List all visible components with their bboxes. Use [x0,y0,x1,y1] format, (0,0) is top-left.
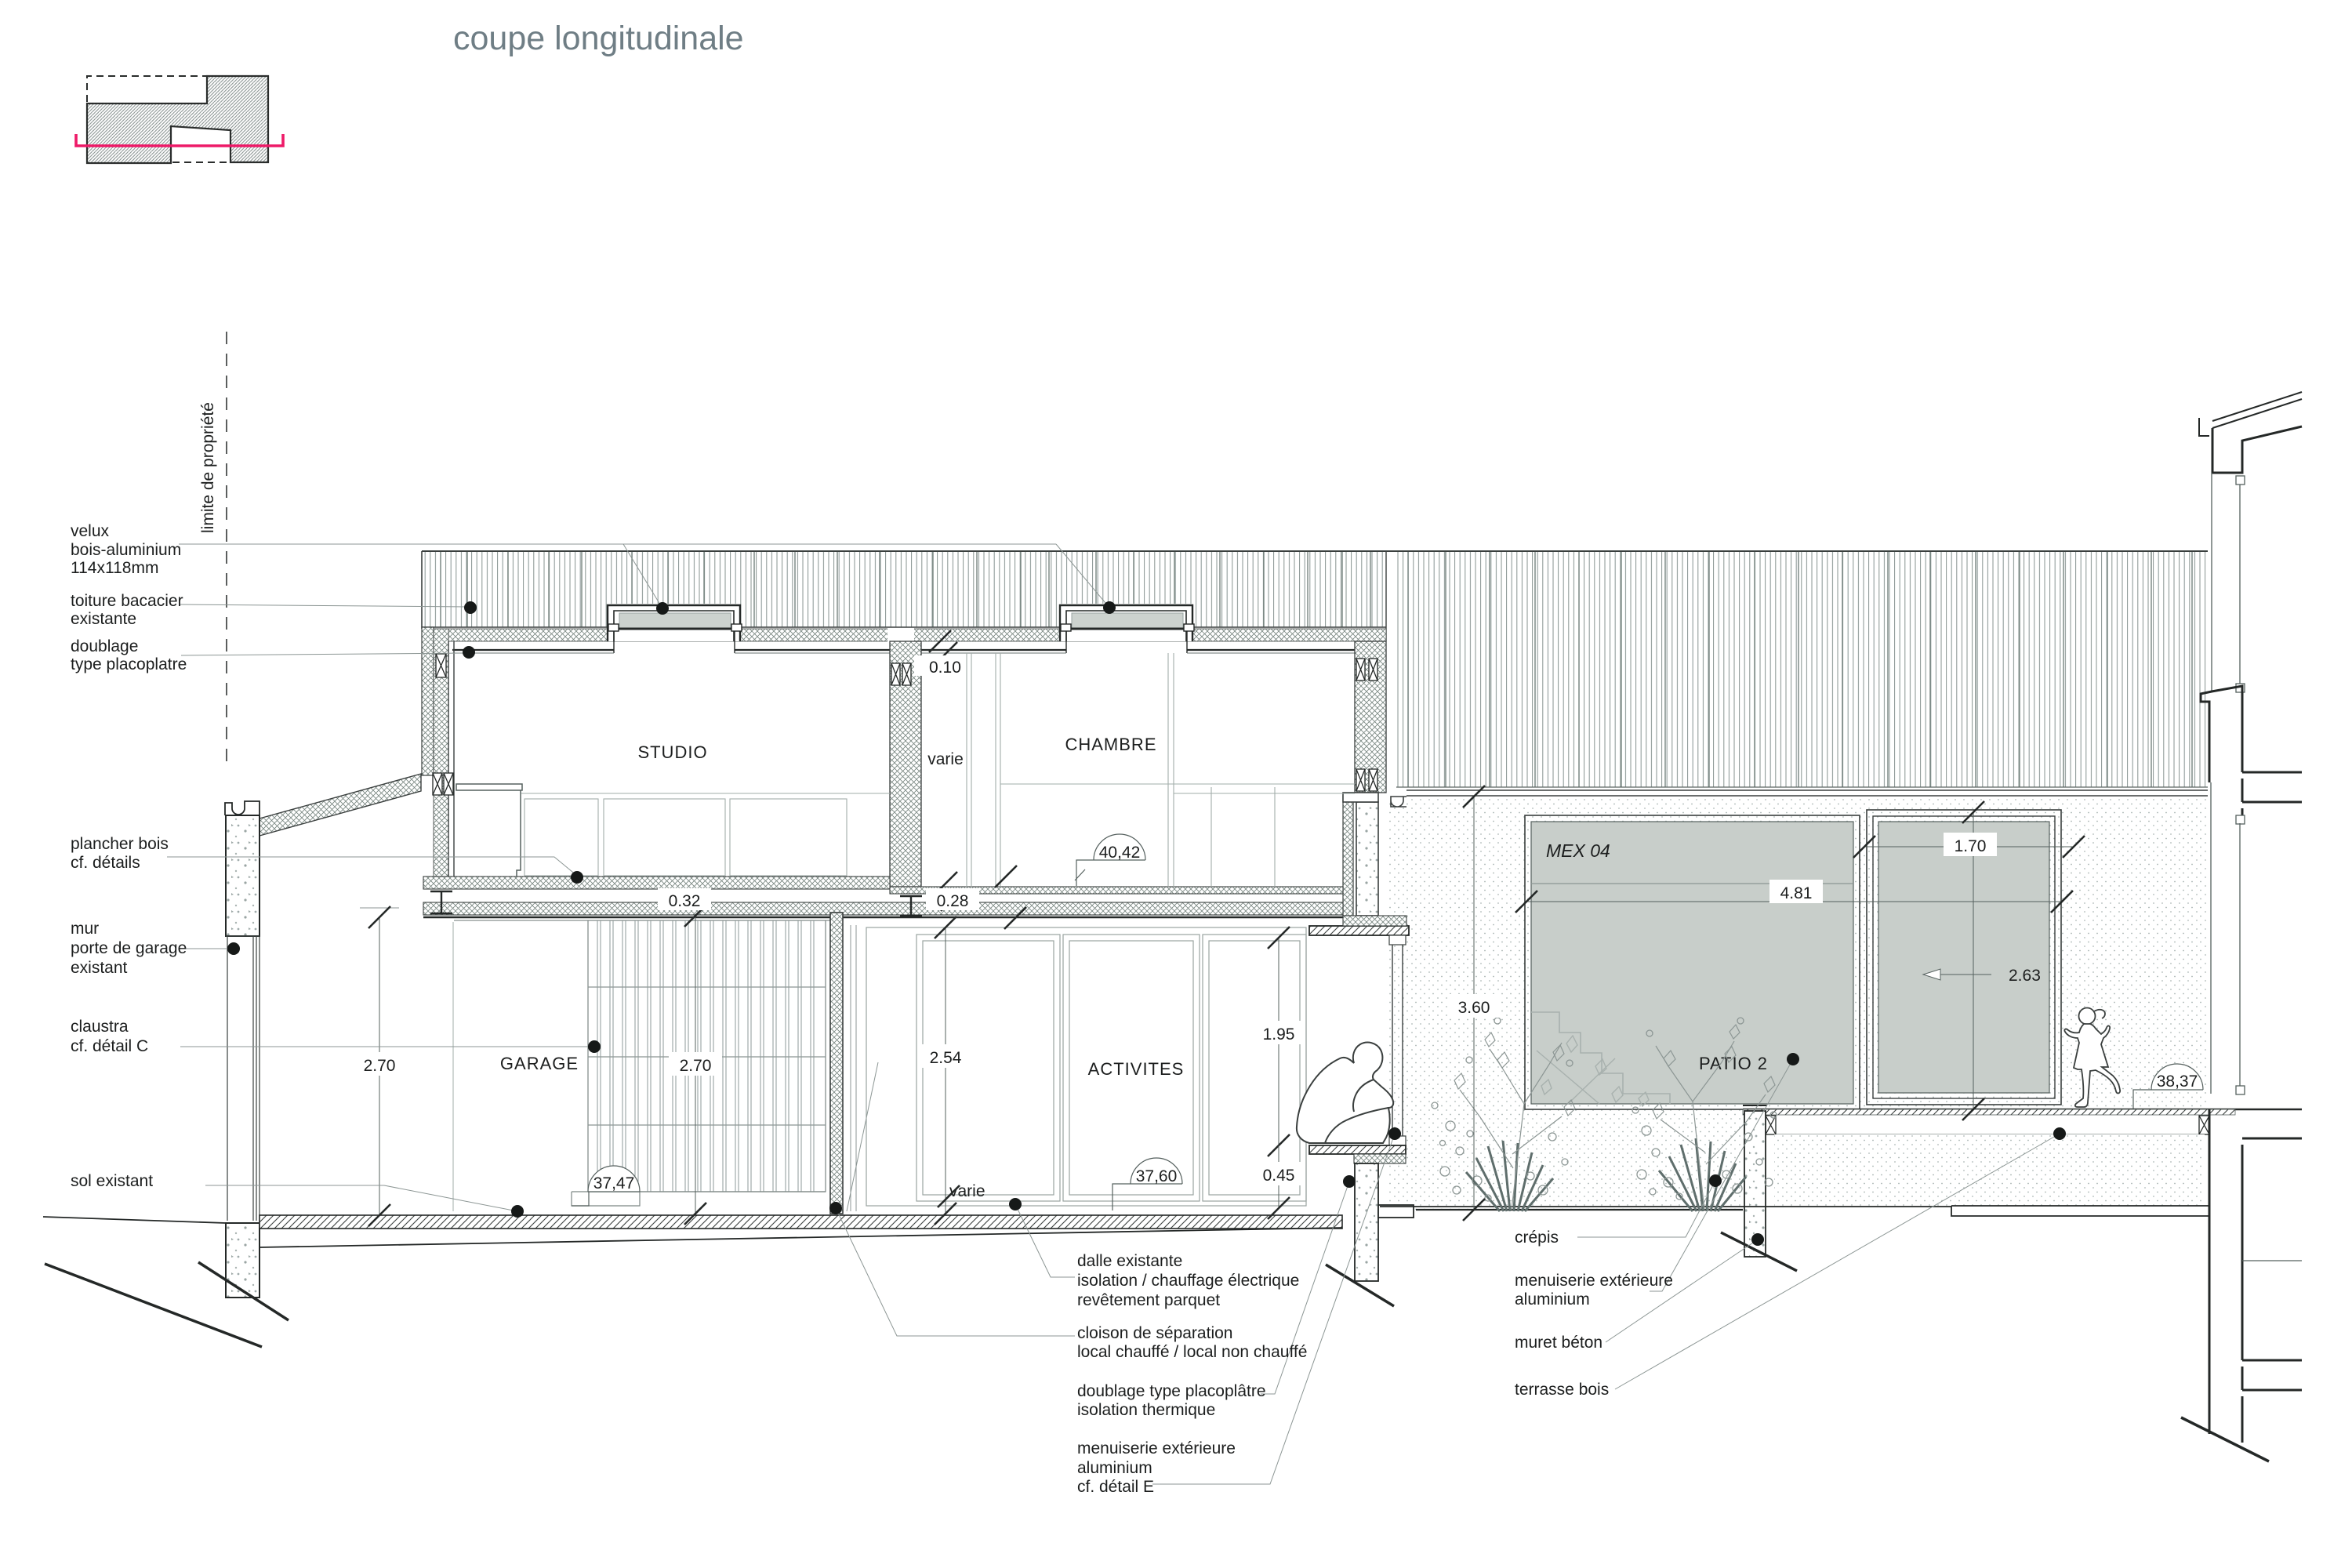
svg-text:crépis: crépis [1515,1229,1559,1247]
svg-text:existante: existante [71,610,136,628]
svg-text:sol existant: sol existant [71,1172,153,1190]
svg-text:cf. détails: cf. détails [71,854,140,872]
svg-text:dalle existante: dalle existante [1077,1252,1182,1270]
svg-text:40,42: 40,42 [1099,844,1141,862]
svg-text:114x118mm: 114x118mm [71,559,158,577]
svg-text:37,47: 37,47 [593,1174,635,1192]
svg-text:1.70: 1.70 [1955,837,1987,855]
svg-text:aluminium: aluminium [1515,1290,1590,1308]
svg-text:local chauffé / local non chau: local chauffé / local non chauffé [1077,1343,1307,1361]
svg-text:ACTIVITES: ACTIVITES [1088,1059,1185,1079]
svg-text:revêtement parquet: revêtement parquet [1077,1291,1220,1309]
svg-text:mur: mur [71,920,99,938]
svg-text:1.95: 1.95 [1263,1025,1295,1044]
svg-text:isolation thermique: isolation thermique [1077,1401,1215,1419]
svg-text:varie: varie [927,750,964,768]
svg-text:existant: existant [71,959,128,977]
svg-text:MEX 04: MEX 04 [1546,840,1610,861]
svg-text:0.45: 0.45 [1263,1167,1295,1185]
svg-text:STUDIO: STUDIO [637,742,707,762]
svg-text:2.70: 2.70 [680,1057,712,1075]
svg-text:cloison de séparation: cloison de séparation [1077,1324,1232,1342]
svg-text:0.28: 0.28 [937,892,969,910]
svg-text:velux: velux [71,522,110,540]
svg-text:doublage type placoplâtre: doublage type placoplâtre [1077,1382,1266,1400]
svg-text:CHAMBRE: CHAMBRE [1065,735,1156,754]
svg-text:38,37: 38,37 [2157,1073,2198,1091]
svg-text:terrasse bois: terrasse bois [1515,1381,1609,1399]
svg-text:cf. détail C: cf. détail C [71,1037,148,1055]
svg-text:0.32: 0.32 [669,892,701,910]
svg-text:bois-aluminium: bois-aluminium [71,541,181,559]
svg-text:menuiserie extérieure: menuiserie extérieure [1077,1439,1236,1457]
svg-text:0.10: 0.10 [929,659,961,677]
svg-text:muret béton: muret béton [1515,1334,1602,1352]
svg-text:coupe longitudinale: coupe longitudinale [453,20,744,57]
svg-text:2.54: 2.54 [930,1049,962,1067]
svg-text:2.63: 2.63 [2009,967,2041,985]
svg-text:isolation / chauffage électriq: isolation / chauffage électrique [1077,1272,1299,1290]
svg-text:toiture bacacier: toiture bacacier [71,592,183,610]
svg-text:menuiserie extérieure: menuiserie extérieure [1515,1272,1673,1290]
svg-text:limite de propriété: limite de propriété [199,402,217,533]
svg-text:porte de garage: porte de garage [71,939,187,957]
svg-text:type placoplatre: type placoplatre [71,655,187,673]
svg-text:2.70: 2.70 [364,1057,396,1075]
svg-text:doublage: doublage [71,637,138,655]
svg-text:37,60: 37,60 [1136,1167,1178,1185]
svg-text:claustra: claustra [71,1018,129,1036]
svg-text:4.81: 4.81 [1780,884,1813,902]
svg-text:plancher bois: plancher bois [71,835,169,853]
svg-text:PATIO 2: PATIO 2 [1699,1054,1768,1073]
svg-text:cf. détail E: cf. détail E [1077,1478,1154,1496]
svg-text:GARAGE: GARAGE [500,1054,579,1073]
svg-text:3.60: 3.60 [1458,999,1490,1017]
svg-text:aluminium: aluminium [1077,1459,1152,1477]
